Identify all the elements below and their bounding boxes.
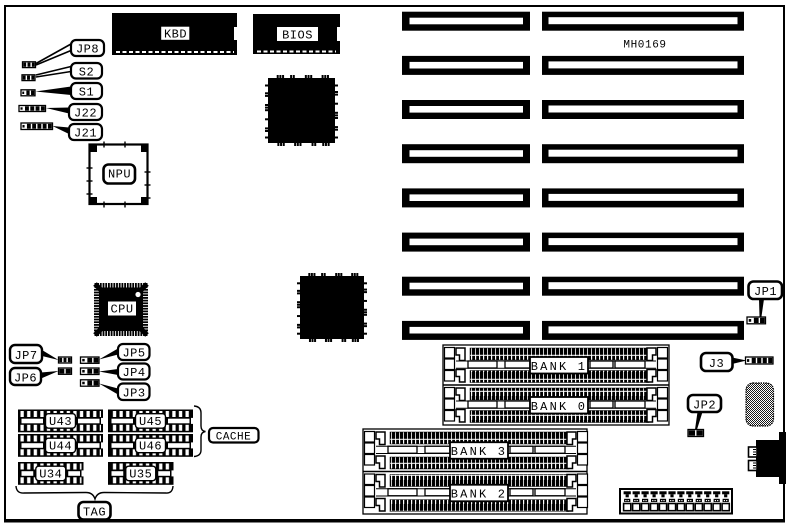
svg-text:BIOS: BIOS <box>282 29 313 43</box>
svg-text:BANK 2: BANK 2 <box>451 488 507 502</box>
svg-text:CPU: CPU <box>110 303 133 317</box>
svg-text:CACHE: CACHE <box>216 432 252 444</box>
svg-text:S2: S2 <box>79 66 94 80</box>
svg-text:JP7: JP7 <box>14 349 37 363</box>
svg-text:S1: S1 <box>79 86 94 100</box>
svg-text:U34: U34 <box>39 468 62 482</box>
svg-text:NPU: NPU <box>108 168 131 182</box>
svg-text:BANK 3: BANK 3 <box>451 445 507 459</box>
svg-text:J21: J21 <box>74 127 97 141</box>
svg-text:J3: J3 <box>709 357 724 371</box>
svg-text:JP1: JP1 <box>754 285 777 299</box>
svg-text:U45: U45 <box>139 415 162 429</box>
svg-text:JP3: JP3 <box>122 387 145 401</box>
svg-text:U43: U43 <box>49 415 72 429</box>
svg-text:BANK 0: BANK 0 <box>531 400 587 414</box>
svg-text:JP8: JP8 <box>76 43 99 57</box>
svg-text:U35: U35 <box>129 468 152 482</box>
svg-text:MH0169: MH0169 <box>623 40 666 52</box>
svg-text:JP2: JP2 <box>693 399 716 413</box>
svg-text:U44: U44 <box>49 440 72 454</box>
svg-text:JP5: JP5 <box>122 347 145 361</box>
svg-text:JP4: JP4 <box>122 366 145 380</box>
svg-text:J22: J22 <box>74 107 97 121</box>
svg-text:TAG: TAG <box>83 506 106 520</box>
svg-text:BANK 1: BANK 1 <box>531 360 587 374</box>
svg-text:JP6: JP6 <box>14 372 37 386</box>
svg-text:U46: U46 <box>139 440 162 454</box>
svg-text:KBD: KBD <box>164 28 187 42</box>
